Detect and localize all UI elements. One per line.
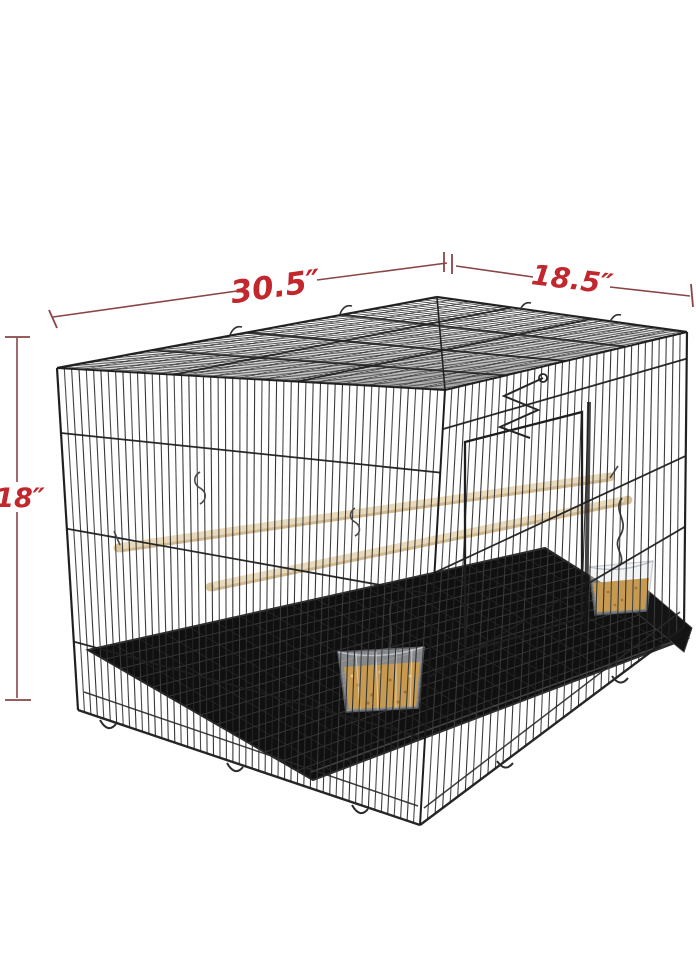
dimension-depth: 18.5″: [456, 258, 693, 307]
width-dimension-label: 30.5″: [228, 263, 323, 311]
depth-right-tick: [691, 284, 693, 307]
dimension-height: 18″: [0, 337, 45, 700]
bird-cage-dimension-diagram: 30.5″ 18.5″ 18″: [0, 0, 696, 960]
wooden-perch-upper: [114, 473, 614, 552]
depth-dimension-label: 18.5″: [530, 258, 615, 301]
height-dimension-label: 18″: [0, 483, 45, 514]
product-dimension-photo: 30.5″ 18.5″ 18″: [0, 0, 696, 960]
bird-cage: [57, 297, 692, 825]
cage-top-mesh: [57, 297, 687, 390]
width-left-tick: [49, 310, 57, 328]
